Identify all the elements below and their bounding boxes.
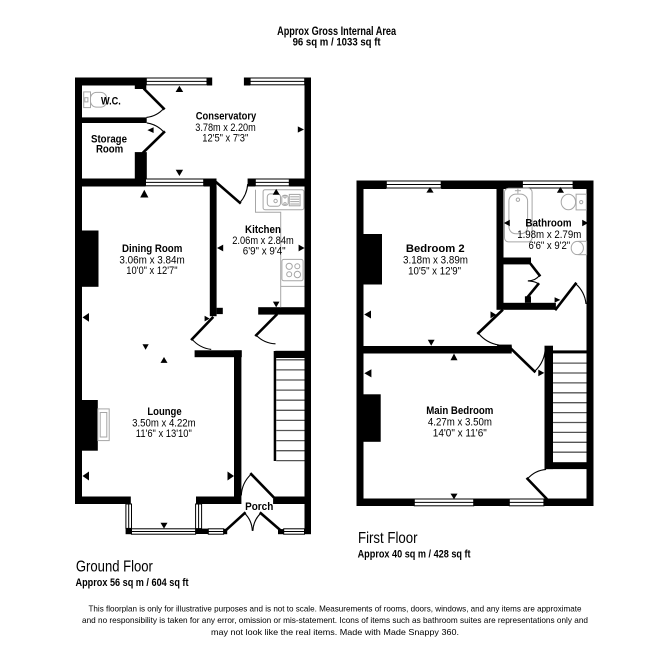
svg-text:Room: Room [96, 144, 123, 156]
svg-text:Bathroom: Bathroom [525, 217, 571, 229]
svg-text:12'5" x 7'3": 12'5" x 7'3" [202, 133, 248, 145]
svg-text:Bedroom 2: Bedroom 2 [406, 243, 465, 255]
svg-text:Main Bedroom: Main Bedroom [426, 405, 493, 417]
svg-text:W.C.: W.C. [101, 96, 121, 108]
svg-text:Conservatory: Conservatory [196, 111, 257, 123]
svg-text:Approx 40 sq m / 428 sq ft: Approx 40 sq m / 428 sq ft [358, 548, 471, 560]
svg-text:96 sq m / 1033 sq ft: 96 sq m / 1033 sq ft [293, 36, 381, 48]
svg-text:10'0" x 12'7": 10'0" x 12'7" [126, 265, 177, 277]
svg-text:6'6" x 9'2": 6'6" x 9'2" [528, 240, 570, 252]
svg-text:Porch: Porch [245, 501, 273, 513]
svg-text:10'5" x 12'9": 10'5" x 12'9" [408, 265, 461, 277]
svg-text:may not look like the real ite: may not look like the real items. Made w… [211, 627, 459, 637]
svg-text:Lounge: Lounge [147, 406, 181, 418]
svg-text:14'0" x 11'6": 14'0" x 11'6" [433, 428, 487, 440]
svg-text:11'6" x 13'10": 11'6" x 13'10" [136, 428, 192, 440]
svg-text:Ground Floor: Ground Floor [76, 558, 153, 575]
svg-text:6'9" x 9'4": 6'9" x 9'4" [243, 246, 286, 258]
svg-text:and no responsibility is taken: and no responsibility is taken for any e… [82, 615, 588, 625]
svg-text:First Floor: First Floor [358, 530, 418, 547]
svg-text:4.27m x 3.50m: 4.27m x 3.50m [428, 416, 492, 428]
svg-text:This floorplan is only for ill: This floorplan is only for illustrative … [89, 604, 582, 614]
svg-text:Approx 56 sq m / 604 sq ft: Approx 56 sq m / 604 sq ft [76, 577, 189, 589]
